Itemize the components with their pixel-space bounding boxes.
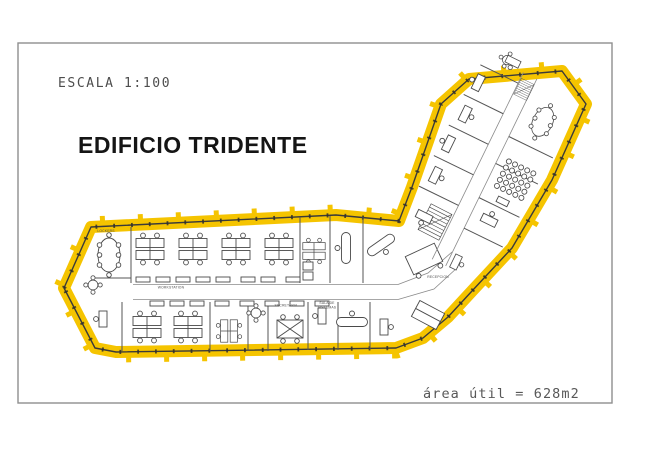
area-label: área útil = 628m2: [423, 386, 580, 402]
lockers-label: LOCKERS: [97, 229, 115, 233]
floor-plan-svg: ESCALA 1:100 EDIFICIO TRIDENTE área útil…: [0, 0, 650, 456]
secretaria-label: SECRETARIA: [275, 304, 299, 308]
scanned-floorplan-page: ESCALA 1:100 EDIFICIO TRIDENTE área útil…: [0, 0, 650, 456]
scale-label: ESCALA 1:100: [58, 76, 171, 91]
sala-sistemas-label-line1: SALA DE: [319, 301, 335, 305]
workstation-label: WORKSTATION: [158, 286, 185, 290]
page-title: EDIFICIO TRIDENTE: [78, 132, 308, 158]
sala-sistemas-label-line2: SISTEMAS: [318, 306, 337, 310]
reception-label: RECEPCION: [427, 275, 449, 279]
